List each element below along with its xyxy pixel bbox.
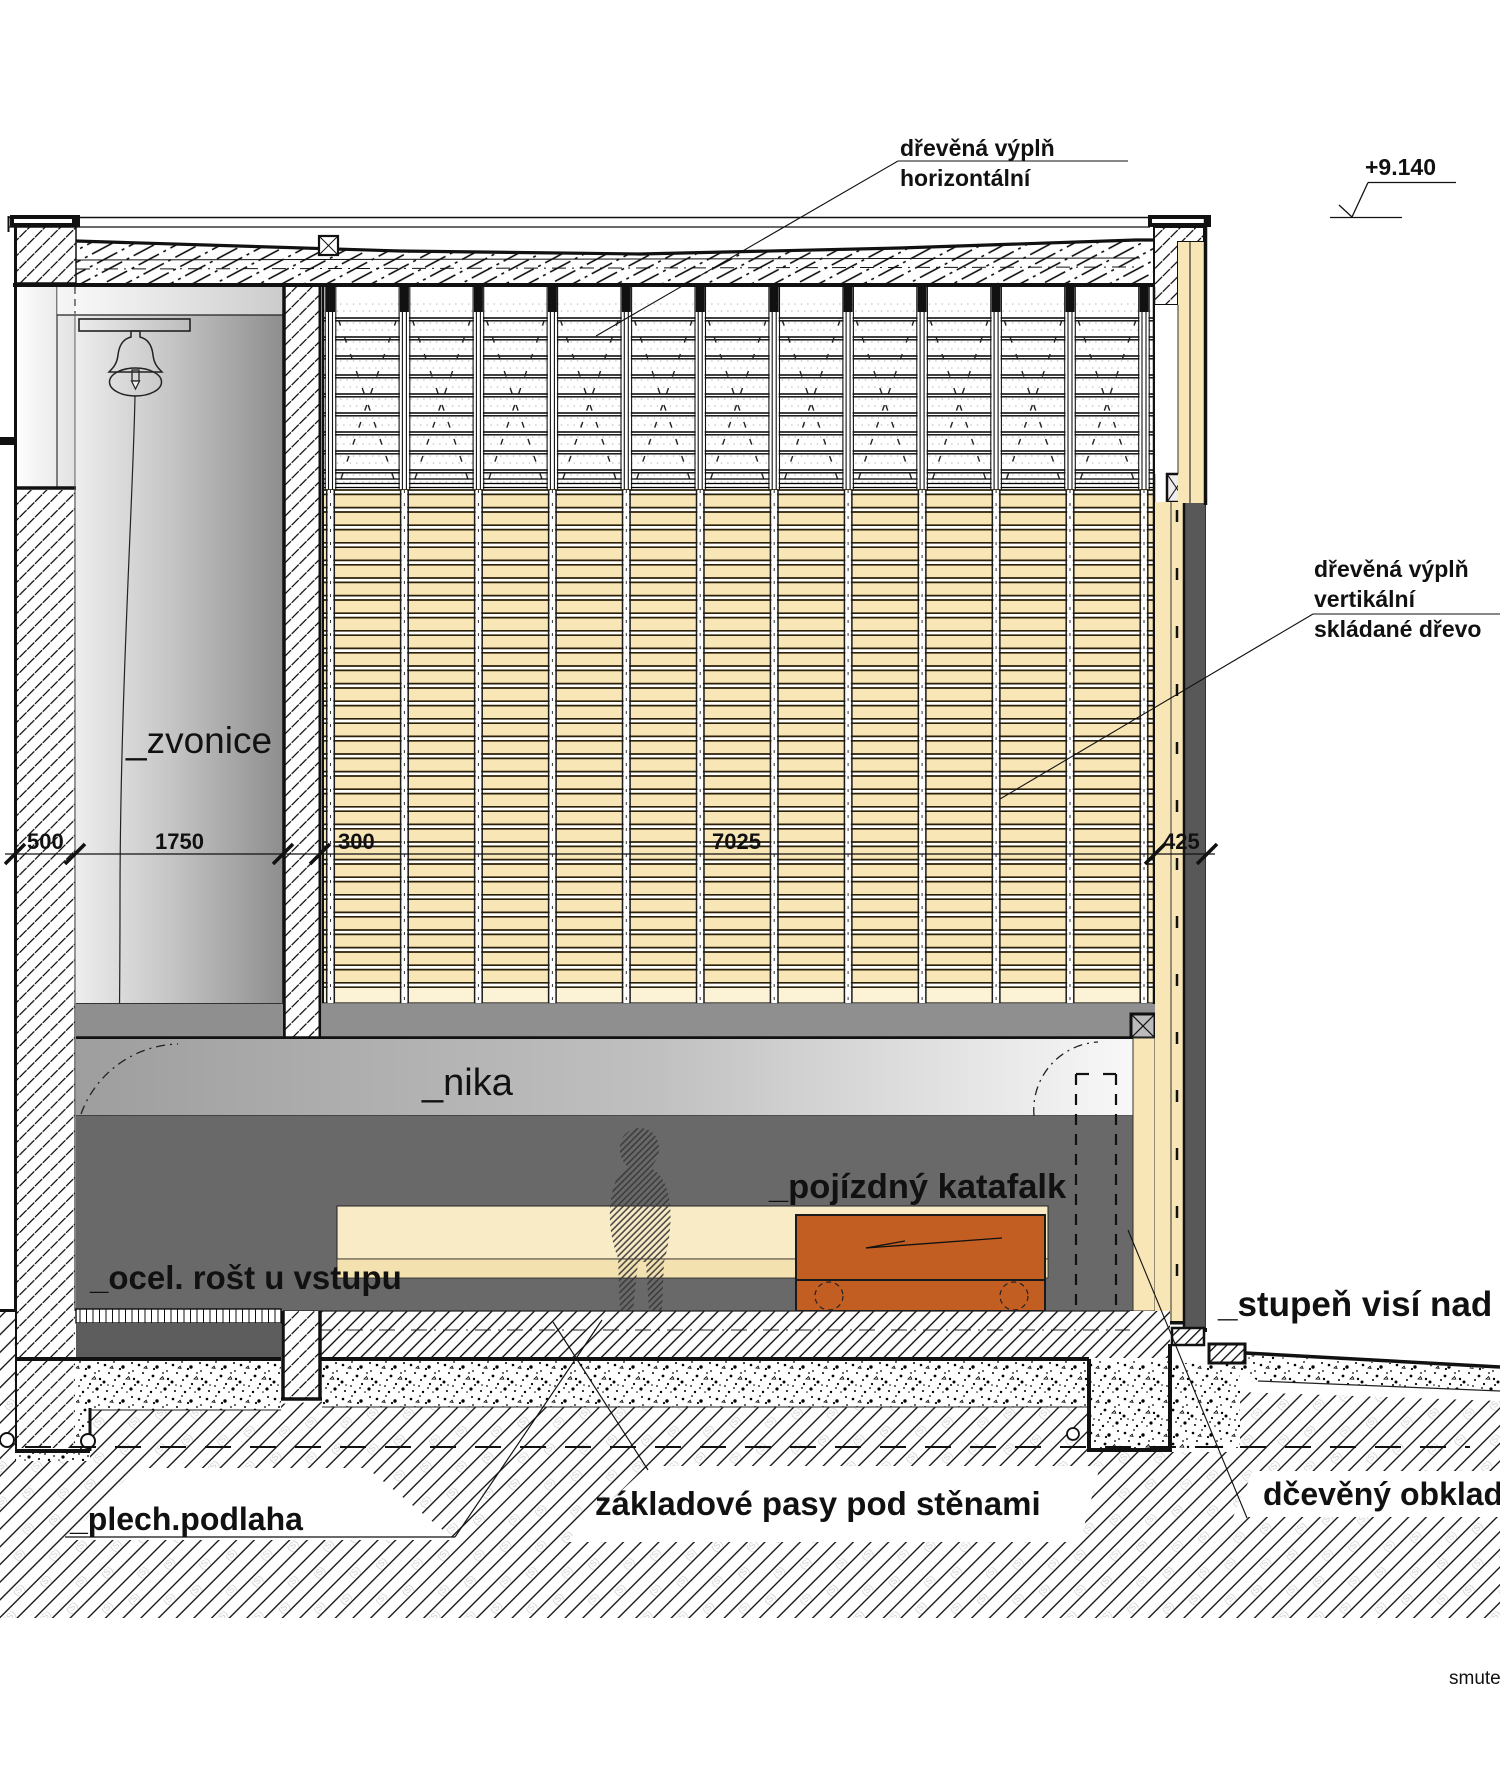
svg-text:425: 425 [1163, 829, 1200, 854]
svg-text:+9.140: +9.140 [1365, 154, 1436, 180]
svg-text:7025: 7025 [712, 829, 761, 854]
svg-text:1750: 1750 [155, 829, 204, 854]
svg-text:vertikální: vertikální [1314, 586, 1417, 612]
svg-text:_stupeň visí nad: _stupeň visí nad [1217, 1285, 1492, 1324]
svg-text:smute: smute [1449, 1668, 1500, 1689]
svg-text:dčevěný obklad: dčevěný obklad [1263, 1476, 1500, 1512]
svg-text:_pojízdný katafalk: _pojízdný katafalk [768, 1168, 1067, 1206]
svg-text:skládané dřevo: skládané dřevo [1314, 616, 1481, 642]
svg-text:_ocel. rošt u vstupu: _ocel. rošt u vstupu [89, 1259, 402, 1296]
svg-text:_zvonice: _zvonice [125, 720, 272, 761]
svg-text:základové pasy pod stěnami: základové pasy pod stěnami [595, 1485, 1041, 1522]
svg-text:horizontální: horizontální [900, 165, 1032, 191]
svg-text:_plech.podlaha: _plech.podlaha [69, 1501, 303, 1537]
svg-text:300: 300 [338, 829, 375, 854]
svg-text:dřevěná výplň: dřevěná výplň [900, 135, 1055, 161]
svg-text:dřevěná výplň: dřevěná výplň [1314, 556, 1469, 582]
svg-text:500: 500 [27, 829, 64, 854]
svg-text:_nika: _nika [421, 1062, 514, 1104]
